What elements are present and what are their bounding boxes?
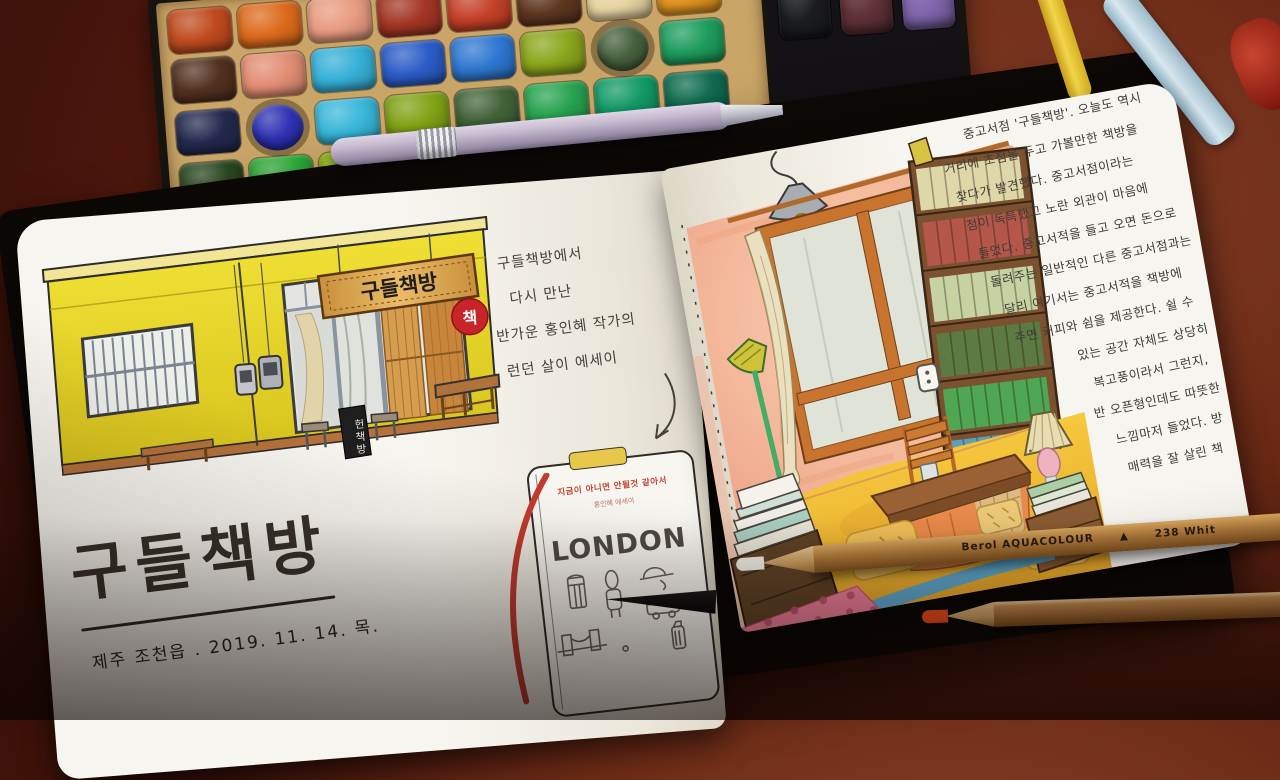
badge-text: 책	[462, 308, 478, 328]
paint-pan	[445, 0, 512, 33]
dust-speck	[152, 608, 156, 612]
date-caption: 제주 조천읍 . 2019. 11. 14. 목.	[90, 611, 381, 674]
paint-pan	[585, 0, 652, 22]
paint-pan	[310, 45, 377, 94]
pencil-code: 238 Whit	[1154, 524, 1216, 540]
paint-pan	[250, 103, 305, 153]
bowler-hat-icon	[639, 566, 675, 593]
paint-pan	[174, 108, 241, 157]
storefront-illustration: 구들책방 책	[38, 203, 516, 543]
barred-window	[82, 324, 198, 416]
standing-sign-text: 헌책방	[344, 411, 370, 465]
paint-pan	[380, 39, 447, 88]
note-block: 구들책방에서다시 만난반가운 홍인혜 작가의런던 살이 에세이	[483, 223, 700, 392]
red-cap	[1220, 9, 1280, 118]
red-lead-tip	[922, 610, 948, 624]
paint-pan	[655, 0, 722, 16]
paint-pan	[836, 0, 894, 36]
paint-pan	[898, 0, 956, 31]
dust-speck	[98, 684, 102, 688]
paint-pan	[775, 0, 833, 41]
milk-bottle-icon	[671, 621, 686, 649]
pen-band	[415, 126, 458, 160]
paint-pan	[236, 0, 303, 49]
paint-pan	[240, 50, 307, 99]
berol-logo-icon: ▲	[1119, 530, 1129, 543]
paint-pan	[519, 28, 586, 77]
bookmark-tab	[568, 446, 628, 470]
paint-pan	[595, 23, 650, 73]
wall-outlet	[916, 363, 940, 392]
paint-pan	[515, 0, 582, 27]
left-page: 구들책방 책	[15, 169, 727, 780]
paint-pan	[376, 0, 443, 38]
pencil-brand: Berol AQUACOLOUR	[961, 532, 1094, 553]
white-lead-tip	[736, 556, 765, 571]
dot-doodle	[623, 646, 629, 652]
paint-pan	[449, 34, 516, 83]
paint-pan	[659, 17, 726, 66]
paint-pan	[166, 6, 233, 55]
paint-pan	[170, 56, 237, 105]
arrow-down-icon	[621, 369, 683, 453]
paint-pan	[306, 0, 373, 44]
royal-guard-icon	[604, 570, 623, 618]
